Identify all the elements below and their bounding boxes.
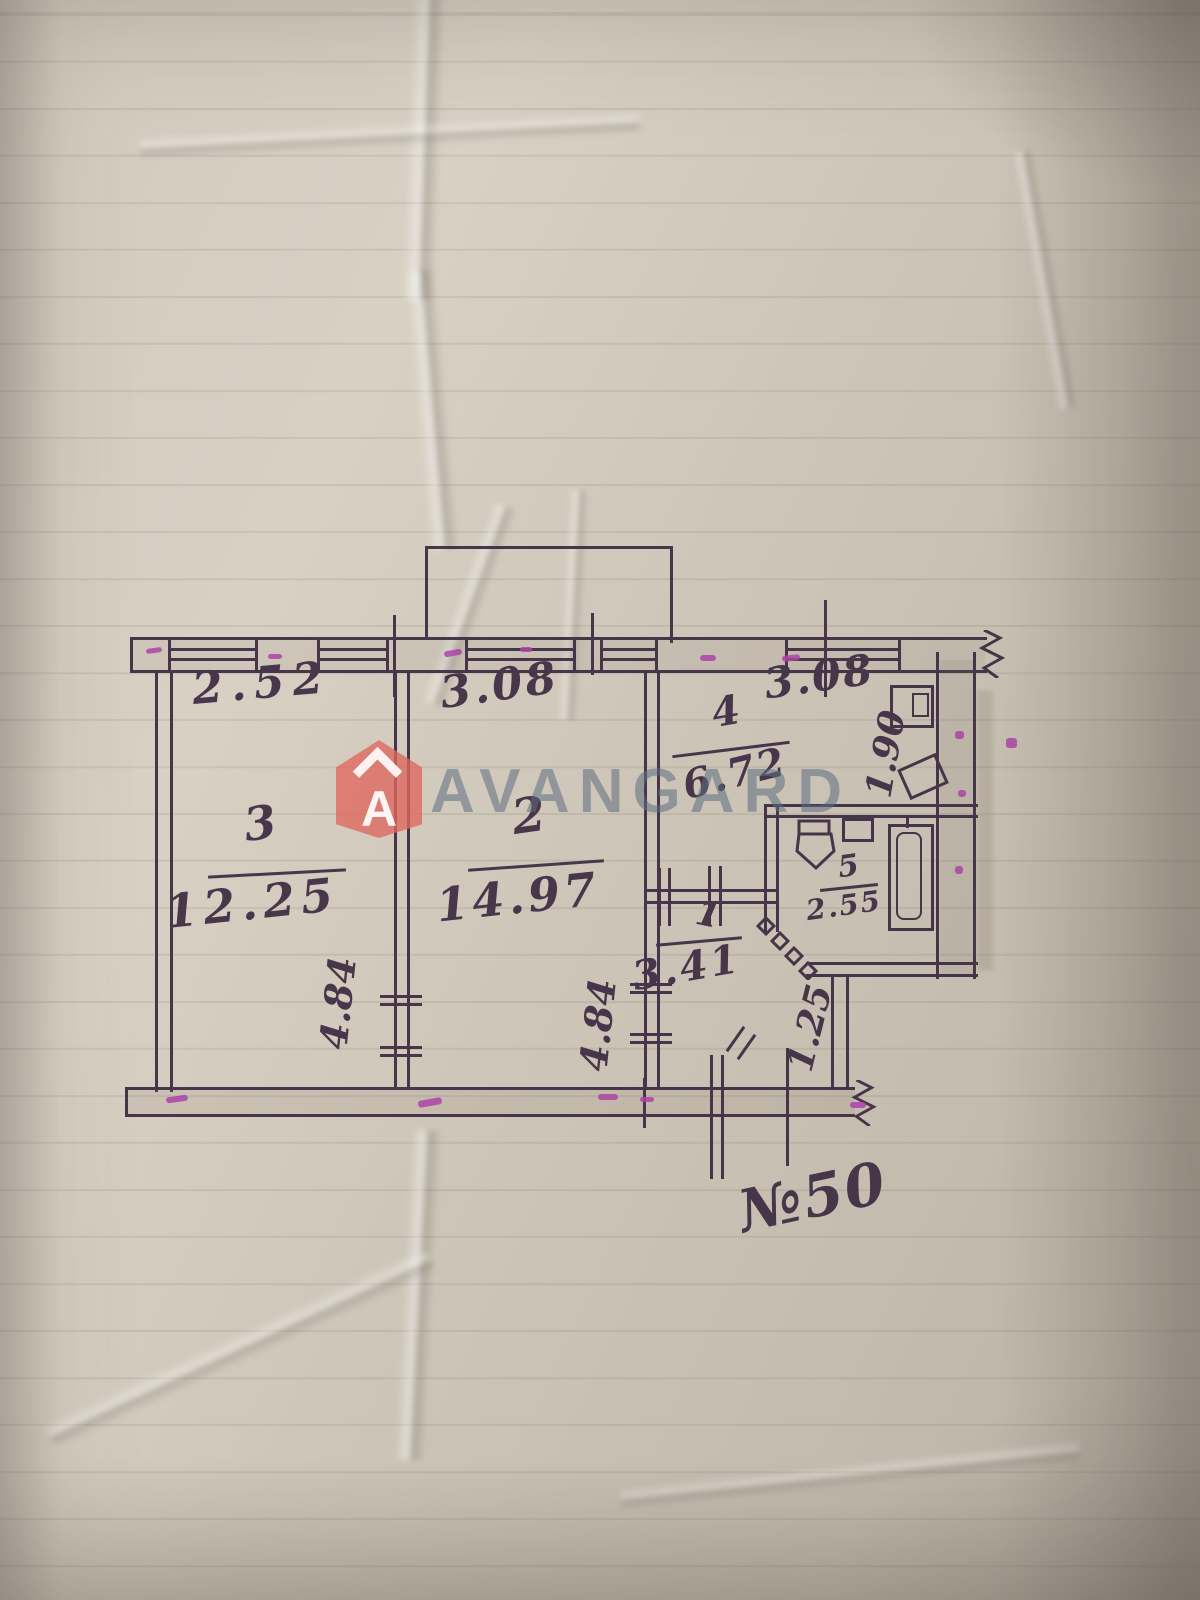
bottom-wall-lower-line [125, 1114, 855, 1117]
dimension-room4-width: 3.08 [762, 649, 877, 706]
wall-break-symbol [978, 630, 1006, 678]
marker-dash [598, 1094, 618, 1100]
apartment-number: №50 [734, 1153, 893, 1241]
balcony-outline-top [425, 546, 673, 549]
bottom-wall-left-cap [125, 1087, 128, 1117]
dimension-tick [643, 1078, 646, 1128]
marker-dash [850, 1102, 866, 1108]
marker-dot [958, 790, 966, 797]
balcony-outline-left [425, 546, 428, 640]
pencil-smudge [977, 690, 993, 970]
top-wall-left-cap [130, 637, 133, 673]
room-3-number: 3 [241, 798, 279, 848]
dimension-room2-width: 3.08 [438, 656, 562, 716]
door-tick [380, 1046, 422, 1049]
marker-dash [700, 655, 716, 661]
bathtub-inner-line [896, 832, 922, 920]
room5-bottom-wall [806, 962, 978, 965]
room-4-number: 4 [709, 690, 743, 734]
balcony-outline-right [670, 546, 673, 643]
marker-dot [955, 866, 963, 874]
dimension-hall-width: 1.25 [782, 981, 838, 1075]
marker-dash [520, 647, 532, 652]
dimension-room3-depth: 4.84 [315, 955, 362, 1051]
left-wall-inner [170, 670, 173, 1092]
dimension-room3-width: 2.52 [190, 656, 332, 712]
room-3-area: 12.25 [163, 871, 341, 935]
photographed-floor-plan-document: 2.52 3.08 3.08 1.90 4.84 4.84 1.25 3 12.… [0, 0, 1200, 1600]
room-2-area: 14.97 [434, 866, 602, 929]
marker-dot [1006, 738, 1017, 748]
bottom-wall-fill [125, 1090, 855, 1114]
bathtub-tap-tick [906, 816, 909, 828]
window-hatch [600, 640, 658, 670]
hall-right-wall [846, 977, 849, 1089]
marker-dash [640, 1097, 654, 1102]
dimension-tick [721, 1055, 724, 1179]
balcony-door-tick [591, 613, 594, 675]
door-tick [380, 1003, 422, 1006]
wall-room3-room2 [407, 673, 410, 1089]
watermark-text: AVANGARD [430, 756, 851, 827]
marker-dot [955, 731, 964, 739]
door-tick [380, 995, 422, 998]
bottom-wall-upper-line [125, 1087, 855, 1090]
wall-room2-hall [644, 673, 647, 1089]
door-tick [630, 1041, 672, 1044]
dimension-tick [710, 1055, 713, 1179]
door-tick [658, 868, 661, 926]
door-tick [630, 1033, 672, 1036]
door-tick [668, 868, 671, 926]
room-5-area: 2.55 [804, 887, 883, 925]
hatch-tick [737, 1034, 757, 1060]
dimension-room2-depth: 4.84 [575, 977, 622, 1073]
door-tick [380, 1054, 422, 1057]
left-wall-outer [155, 670, 158, 1092]
vent-duct-inner [912, 693, 929, 717]
room-5-number: 5 [836, 851, 861, 884]
wall-room3-room2 [394, 673, 397, 1089]
